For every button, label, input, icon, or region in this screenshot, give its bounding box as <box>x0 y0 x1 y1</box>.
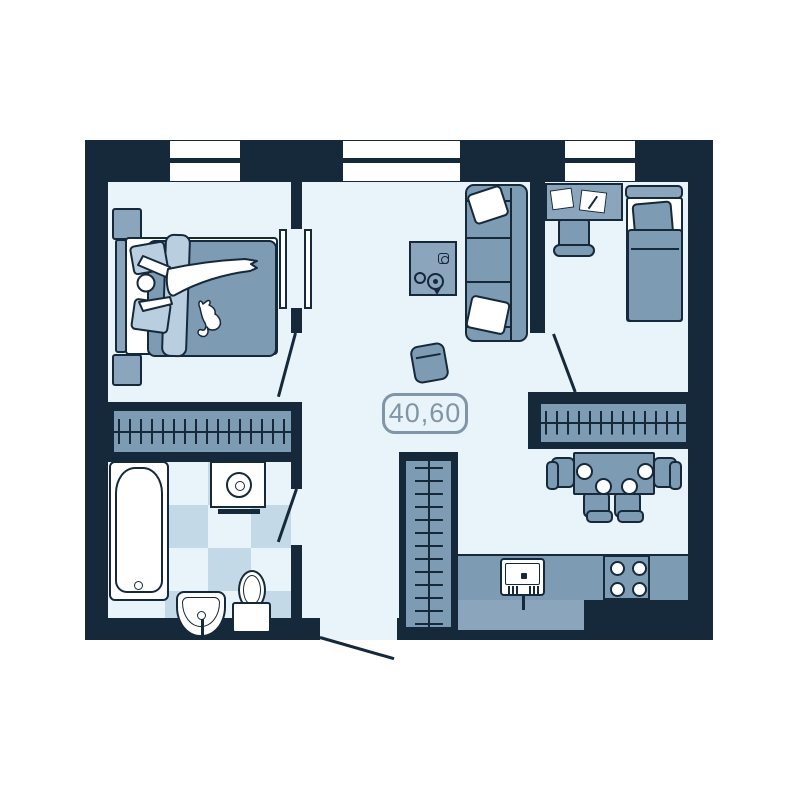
desk-chair-back <box>553 244 595 257</box>
window-icon <box>170 141 240 181</box>
floor-plan: 40,60 <box>0 0 800 800</box>
plate-icon <box>576 463 593 480</box>
desk-chair-seat <box>558 219 590 247</box>
wall-bedroom-living <box>291 182 302 229</box>
single-bed-blanket <box>627 229 683 322</box>
basin-spout <box>197 611 206 620</box>
entrance-opening <box>320 618 397 640</box>
area-value: 40,60 <box>389 398 462 429</box>
sink-drain <box>521 573 527 579</box>
kitchen-sink <box>500 558 545 596</box>
kitchen-counter <box>456 554 690 602</box>
toilet-tank <box>232 602 271 633</box>
washer-base <box>218 509 260 514</box>
page: 40,60 <box>0 0 800 800</box>
plate-icon <box>595 478 612 495</box>
door-panel <box>279 229 287 309</box>
wall-kidsroom <box>530 182 545 333</box>
wall-bathroom <box>291 462 302 489</box>
sink-grate <box>529 586 539 595</box>
blanket-fold-line <box>631 248 679 250</box>
plate-icon <box>438 253 449 264</box>
wardrobe-rail-icon <box>114 411 291 452</box>
dining-chair <box>551 457 575 488</box>
basin-tap <box>201 619 204 640</box>
plate-icon <box>637 463 654 480</box>
toilet-seat <box>243 575 261 605</box>
dining-chair <box>614 491 641 518</box>
window-icon <box>565 141 635 181</box>
papers <box>550 188 575 211</box>
sink-grate <box>508 586 518 595</box>
papers <box>579 189 607 213</box>
stove-burner-icon <box>632 561 647 576</box>
wall-bedroom-living <box>291 308 302 333</box>
cat-figure <box>190 296 230 340</box>
plate-icon <box>621 478 638 495</box>
washer-drum <box>226 472 252 498</box>
outer-wall-kitchen <box>586 600 713 640</box>
window-icon <box>343 141 460 181</box>
dining-chair <box>583 491 610 518</box>
wall-bathroom <box>291 545 302 618</box>
teapot-icon <box>427 273 444 290</box>
nightstand <box>112 354 142 386</box>
dining-chair <box>653 457 677 488</box>
wardrobe-rail-icon <box>541 404 686 442</box>
ottoman <box>409 341 450 385</box>
nightstand <box>112 208 142 240</box>
kitchen-counter-return <box>456 600 586 632</box>
bathtub <box>109 461 169 601</box>
wardrobe-rail-icon <box>406 461 451 627</box>
bathtub-basin <box>115 467 163 593</box>
bathtub-drain <box>134 581 143 590</box>
cup-icon <box>414 272 426 284</box>
sink-faucet <box>522 594 525 610</box>
stove-burner-icon <box>610 582 625 597</box>
area-label: 40,60 <box>382 393 468 434</box>
stove <box>603 555 650 600</box>
washing-machine <box>210 461 266 508</box>
door-panel <box>304 229 312 309</box>
stove-burner-icon <box>610 561 625 576</box>
stove-burner-icon <box>632 582 647 597</box>
